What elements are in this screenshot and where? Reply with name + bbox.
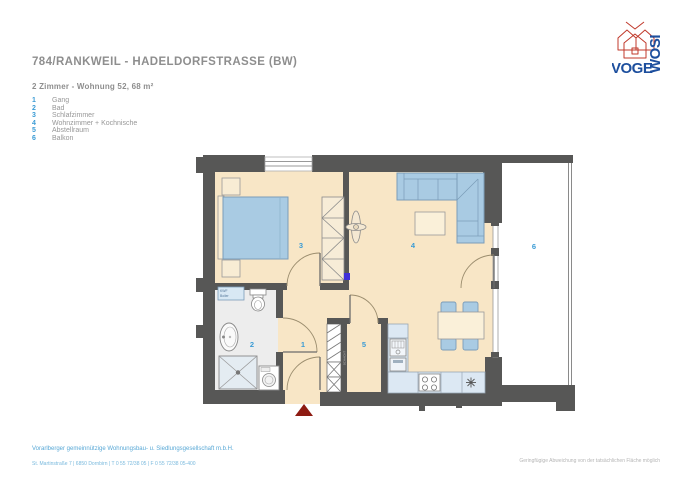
wall-bedroom-south bbox=[320, 283, 349, 290]
coffee-table bbox=[415, 212, 445, 235]
wall-left bbox=[203, 155, 215, 404]
room-label-abstellraum: 5 bbox=[362, 340, 366, 349]
room-label-schlafzimmer: 3 bbox=[299, 241, 303, 250]
plan-sheet: 784/RANKWEIL - HADELDORFSTRASSE (BW) 2 Z… bbox=[0, 0, 690, 488]
footer-company: Vorarlberger gemeinnützige Wohnungsbau- … bbox=[32, 446, 234, 452]
entrance-arrow-icon bbox=[295, 404, 313, 416]
dishwasher bbox=[390, 358, 406, 371]
wall-top-mid bbox=[312, 155, 502, 172]
wall-bottom-left bbox=[203, 390, 285, 404]
nightstand bbox=[222, 260, 240, 277]
washbasin bbox=[220, 323, 238, 351]
fridge-snowflake-icon bbox=[466, 378, 476, 388]
wall-stub bbox=[196, 157, 203, 173]
washing-machine bbox=[259, 366, 279, 390]
entrance-threshold bbox=[285, 390, 320, 404]
kitchen-sink bbox=[390, 339, 406, 356]
stove bbox=[419, 374, 440, 391]
room-label-balkon: 6 bbox=[532, 242, 536, 251]
room-label-bad: 2 bbox=[250, 340, 254, 349]
technical-shaft bbox=[327, 324, 341, 392]
wall-bottom-mid bbox=[320, 392, 502, 406]
wall-stub bbox=[456, 404, 462, 408]
wall-right-lower bbox=[485, 357, 502, 395]
wall-balcony-top bbox=[502, 155, 573, 163]
wardrobe bbox=[322, 197, 344, 280]
boiler-label-1: KWF bbox=[220, 289, 228, 293]
wall-storage-north bbox=[378, 318, 388, 324]
wall-stub bbox=[419, 406, 425, 411]
wall-storage-east bbox=[381, 324, 388, 393]
dining-table bbox=[438, 312, 484, 339]
floor-plan: SCHACHT bbox=[0, 0, 690, 488]
toilet bbox=[250, 289, 266, 311]
footer-address: St. Martinstraße 7 | 6850 Dornbirn | T 0… bbox=[32, 461, 196, 467]
chair bbox=[463, 338, 478, 350]
bedroom-window bbox=[265, 157, 312, 171]
wall-storage-north bbox=[327, 318, 350, 324]
chair bbox=[441, 338, 456, 350]
wall-balcony-bottom-step bbox=[556, 385, 575, 411]
footer-disclaimer: Geringfügige Abweichung von der tatsächl… bbox=[519, 458, 660, 464]
wall-bath-east bbox=[276, 290, 283, 318]
boiler-label-2: Boiler bbox=[220, 294, 230, 298]
wall-stub bbox=[196, 325, 203, 338]
shaft-label: SCHACHT bbox=[343, 351, 347, 366]
wall-right-upper bbox=[483, 172, 502, 223]
boiler: KWF Boiler bbox=[218, 287, 244, 300]
shower bbox=[219, 356, 257, 389]
wall-stub bbox=[196, 278, 203, 292]
electric-panel-marker bbox=[344, 273, 350, 280]
balcony-railing bbox=[569, 163, 572, 385]
room-label-gang: 1 bbox=[301, 340, 305, 349]
nightstand bbox=[222, 178, 240, 195]
